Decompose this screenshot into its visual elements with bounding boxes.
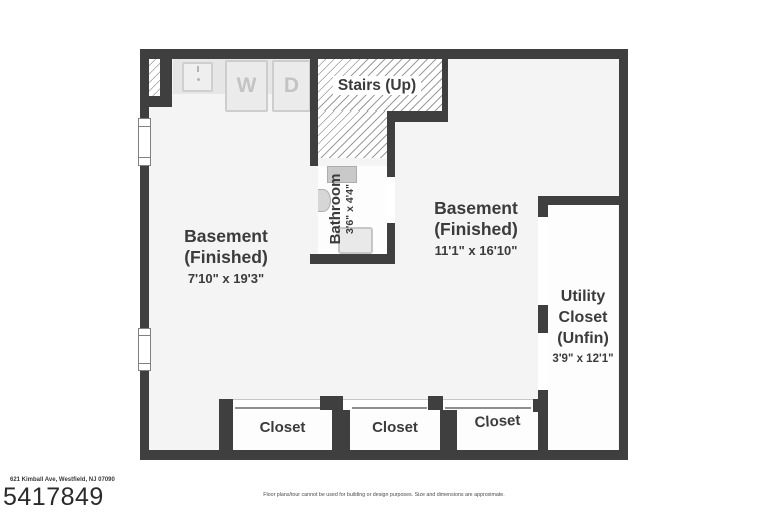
dryer-label: D <box>284 74 299 98</box>
utility-closet-label: Utility Closet (Unfin) 3'9" x 12'1" <box>545 286 621 367</box>
wall-right <box>619 49 628 460</box>
washer-icon: W <box>225 60 268 112</box>
utility-line3: (Unfin) <box>545 328 621 349</box>
drain-dot-icon <box>197 78 200 81</box>
stairs-area-lower <box>318 111 387 158</box>
wall-closet-2-3 <box>440 410 457 452</box>
closet-2-label: Closet <box>350 419 440 436</box>
wall-left <box>140 49 149 460</box>
utility-dims: 3'9" x 12'1" <box>545 351 621 367</box>
washer-label: W <box>237 74 257 98</box>
wall-closet-1-2 <box>332 410 350 452</box>
basement-left-label: Basement (Finished) 7'10" x 19'3" <box>150 226 302 288</box>
basement-left-dims: 7'10" x 19'3" <box>150 270 302 288</box>
utility-line2: Closet <box>545 307 621 328</box>
closet-3-sliding-door <box>445 407 531 409</box>
basement-right-name: Basement <box>399 198 553 219</box>
wall-bottom <box>140 450 628 460</box>
basement-right-status: (Finished) <box>399 219 553 240</box>
faucet-icon <box>197 66 199 72</box>
closet-header-2 <box>428 396 443 410</box>
utility-line1: Utility <box>545 286 621 307</box>
closet-2-sliding-door <box>352 407 427 409</box>
closet-header-1 <box>320 396 343 410</box>
stairs-label: Stairs (Up) <box>312 77 442 95</box>
basement-right-label: Basement (Finished) 11'1" x 16'10" <box>399 198 553 260</box>
bathroom-label: Bathroom 3'6" x 4'4" <box>327 162 365 256</box>
floor-plan: W D <box>0 0 768 512</box>
closet-front-line <box>233 399 538 400</box>
closet-1-sliding-door <box>235 407 320 409</box>
bathroom-name: Bathroom <box>327 162 344 256</box>
laundry-sink-icon <box>182 62 213 92</box>
wall-closet-left-end <box>219 399 233 452</box>
window-icon-upper <box>138 118 151 166</box>
bathroom-door-opening <box>387 177 395 223</box>
wall-stairs-step <box>387 111 448 122</box>
bathroom-dims: 3'6" x 4'4" <box>344 162 357 256</box>
disclaimer-text: Floor plans/tour cannot be used for buil… <box>0 492 768 498</box>
wall-chase-bottom <box>140 96 172 107</box>
basement-right-dims: 11'1" x 16'10" <box>399 242 553 260</box>
basement-left-name: Basement <box>150 226 302 247</box>
window-icon-lower <box>138 328 151 371</box>
dryer-icon: D <box>272 60 311 112</box>
closet-1-label: Closet <box>233 419 332 436</box>
chimney-chase <box>148 59 160 96</box>
basement-left-status: (Finished) <box>150 247 302 268</box>
wall-top <box>140 49 628 59</box>
wall-stairs-left <box>310 59 318 166</box>
